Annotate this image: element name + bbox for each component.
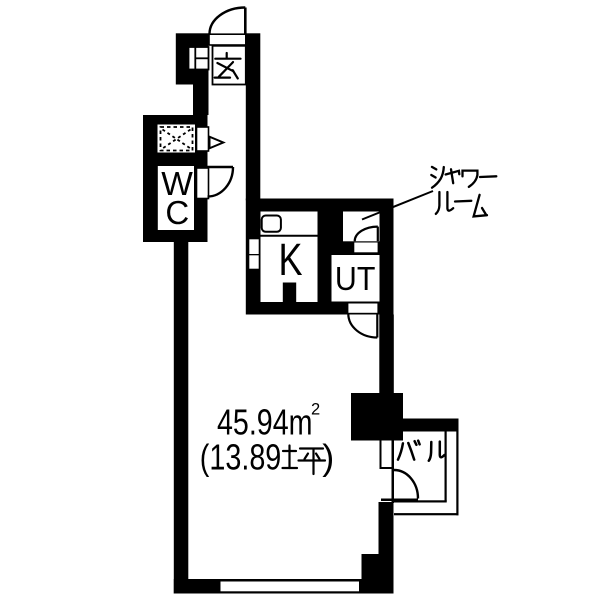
svg-text:(13.89: (13.89 [200, 437, 281, 478]
svg-text:2: 2 [311, 401, 320, 419]
svg-text:UT: UT [335, 260, 376, 297]
svg-text:C: C [165, 194, 189, 231]
svg-text:K: K [278, 234, 302, 285]
svg-text:): ) [322, 437, 334, 478]
